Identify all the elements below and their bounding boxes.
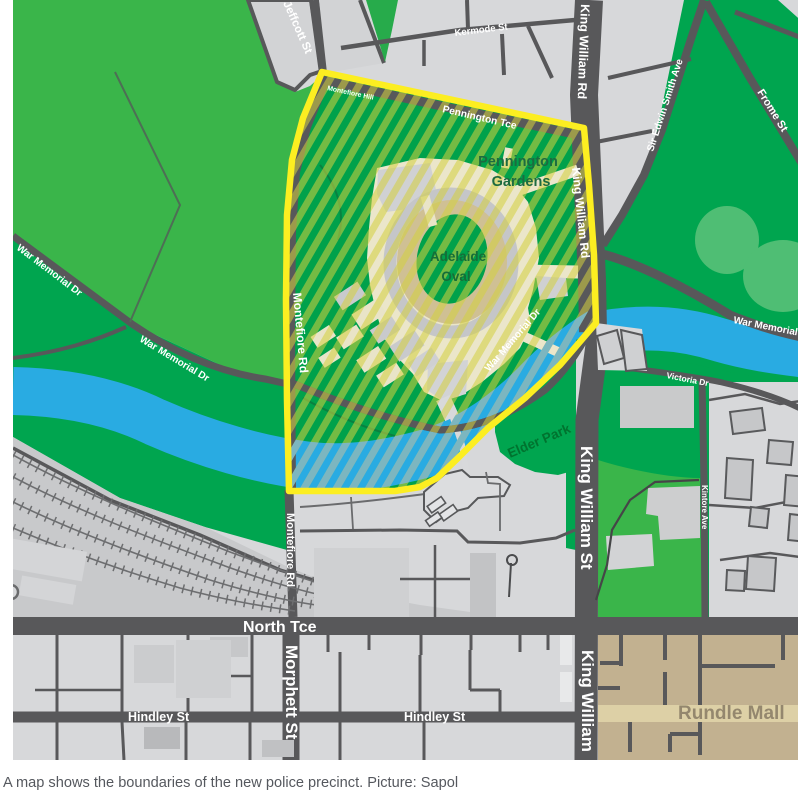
svg-text:King William: King William [578,650,597,752]
svg-text:North Tce: North Tce [243,619,317,636]
svg-text:A map shows the boundaries of: A map shows the boundaries of the new po… [3,775,458,791]
svg-text:Pennington: Pennington [478,154,558,170]
svg-text:Morphett St: Morphett St [282,645,301,740]
svg-text:Kintore Ave: Kintore Ave [700,485,709,530]
svg-text:Rundle Mall: Rundle Mall [678,703,785,724]
svg-text:Montefiore Rd: Montefiore Rd [284,513,296,587]
svg-text:Gardens: Gardens [492,174,551,190]
svg-text:Hindley St: Hindley St [128,710,190,724]
svg-text:Oval: Oval [441,269,470,284]
svg-text:Adelaide: Adelaide [430,249,487,264]
svg-text:King William St: King William St [577,446,596,570]
svg-text:Hindley St: Hindley St [404,710,466,724]
